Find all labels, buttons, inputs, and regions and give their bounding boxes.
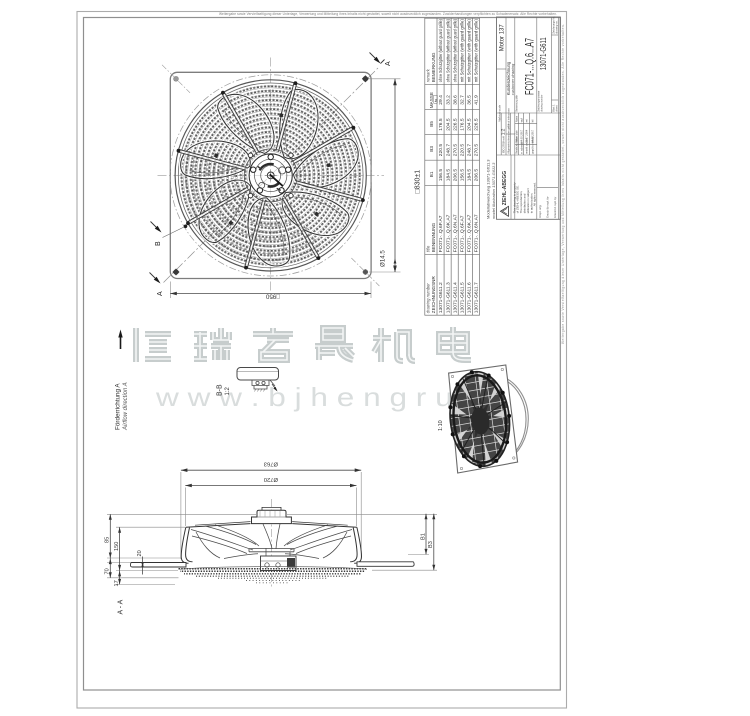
svg-text:B3: B3: [428, 541, 434, 548]
svg-text:226.5: 226.5: [474, 118, 480, 131]
svg-text:A: A: [385, 61, 392, 66]
svg-text:17: 17: [114, 580, 120, 586]
svg-text:ZIEHL-ABEGG: ZIEHL-ABEGG: [502, 171, 508, 206]
svg-text:270.5: 270.5: [474, 144, 480, 157]
svg-text:ZEICHNUNGSNR: ZEICHNUNGSNR: [431, 276, 436, 314]
svg-text:Benennung title: Benennung title: [516, 95, 519, 112]
svg-text:wuf: wuf: [519, 118, 523, 122]
svg-text:B1: B1: [429, 171, 434, 177]
svg-text:ohne Schutzgitter (without gua: ohne Schutzgitter (without guard grille): [452, 19, 458, 82]
svg-text:Allgemeintoleranzen general to: Allgemeintoleranzen general tolerances: [507, 108, 511, 154]
svg-text:20: 20: [137, 550, 143, 556]
svg-text:13071-G611.6: 13071-G611.6: [467, 282, 473, 313]
svg-text:title: title: [425, 245, 430, 252]
svg-text:Ersatz für repl. for: Ersatz für repl. for: [546, 196, 550, 217]
svg-text:33.2: 33.2: [445, 95, 451, 105]
svg-text:29.4: 29.4: [438, 95, 444, 105]
svg-text:A: A: [157, 291, 164, 296]
svg-text:38.6: 38.6: [452, 95, 458, 105]
svg-text:13071-G611.2: 13071-G611.2: [438, 282, 444, 313]
svg-text:13071-G611: 13071-G611: [538, 37, 548, 70]
svg-text:mit Schutzgitter (with guard g: mit Schutzgitter (with guard grille): [467, 19, 473, 82]
svg-text:13071-G611.3: 13071-G611.3: [445, 282, 451, 313]
svg-text:w w w . b j h e n g r u i .: w w w . b j h e n g r u i .: [155, 382, 486, 412]
svg-text:□830±1: □830±1: [415, 170, 422, 194]
svg-text:1:2: 1:2: [501, 128, 507, 135]
svg-text:Name: Name: [516, 115, 519, 122]
svg-text:FC071-..Q.6F.A7: FC071-..Q.6F.A7: [438, 215, 444, 252]
svg-text:B-B: B-B: [217, 384, 224, 396]
svg-text:150: 150: [114, 542, 120, 551]
svg-text:Modellabweichung 13071-G611.3: Modellabweichung 13071-G611.3: [486, 159, 491, 219]
svg-text:drawing number: drawing number: [540, 94, 543, 111]
svg-text:FC071-..Q.6K.A7: FC071-..Q.6K.A7: [445, 214, 451, 252]
svg-text:204.5: 204.5: [445, 118, 451, 131]
svg-text:Airflow direction A: Airflow direction A: [123, 382, 129, 431]
svg-text:B3: B3: [429, 146, 434, 152]
svg-text:FC071-..Q.6F.A7: FC071-..Q.6F.A7: [459, 215, 465, 252]
svg-text:sheet: sheet: [554, 105, 558, 112]
svg-text:Datum date: Datum date: [516, 130, 519, 143]
svg-text:248.7: 248.7: [467, 144, 473, 157]
svg-text:ohne Schutzgitter (without gua: ohne Schutzgitter (without guard grille): [445, 19, 451, 82]
svg-text:customer drawing: customer drawing: [510, 63, 515, 95]
svg-text:Ø14.5: Ø14.5: [380, 250, 387, 267]
svg-text:± 0.5: ± 0.5: [508, 123, 511, 129]
svg-text:206.5: 206.5: [474, 169, 480, 182]
svg-text:41.9: 41.9: [474, 95, 480, 105]
svg-text:FC071-...Q.6...A7: FC071-...Q.6...A7: [525, 38, 537, 95]
svg-text:BEMERKUNG: BEMERKUNG: [431, 52, 436, 82]
svg-text:04.05.2017: 04.05.2017: [519, 129, 523, 143]
svg-text:B: B: [155, 241, 162, 246]
svg-text:248.7: 248.7: [445, 144, 451, 157]
svg-text:drawing number: drawing number: [425, 283, 430, 314]
svg-text:176.5: 176.5: [459, 118, 465, 131]
svg-text:Ø720: Ø720: [264, 476, 278, 482]
svg-text:A - A: A - A: [118, 599, 125, 614]
svg-text:184.5: 184.5: [445, 169, 451, 182]
svg-text:13071-G611.5: 13071-G611.5: [459, 282, 465, 313]
svg-text:04.05.2017: 04.05.2017: [531, 129, 535, 143]
svg-text:13071-G611.4: 13071-G611.4: [452, 282, 458, 313]
svg-text:Weitergabe sowie Vervielfaelti: Weitergabe sowie Vervielfaeltigung diese…: [561, 24, 565, 344]
svg-text:Maßstab scale: Maßstab scale: [497, 104, 501, 121]
svg-text:B5: B5: [429, 121, 434, 127]
svg-text:206.5: 206.5: [452, 169, 458, 182]
svg-text:184.5: 184.5: [467, 169, 473, 182]
svg-text:220.5: 220.5: [459, 144, 465, 157]
svg-text:drawing no.: drawing no.: [554, 20, 558, 34]
svg-text:mit Schutzgitter (with guard g: mit Schutzgitter (with guard grille): [474, 19, 480, 82]
svg-text:B1: B1: [420, 533, 426, 540]
svg-text:mit Schutzgitter (with guard g: mit Schutzgitter (with guard grille): [459, 19, 465, 82]
svg-text:Ø763: Ø763: [264, 461, 278, 467]
svg-text:remark: remark: [425, 68, 430, 82]
svg-text:hil: hil: [531, 119, 535, 122]
svg-text:Förderrichtung A: Förderrichtung A: [115, 383, 122, 430]
svg-text:156.5: 156.5: [438, 169, 444, 182]
svg-text:Ersetzt d. repl. by: Ersetzt d. repl. by: [553, 196, 557, 218]
svg-text:226.5: 226.5: [452, 118, 458, 131]
svg-text:model illustration 13071-G611: model illustration 13071-G611.3: [491, 162, 496, 219]
svg-text:32.7: 32.7: [459, 95, 465, 105]
svg-text:70: 70: [105, 568, 111, 574]
svg-text:FC071-..Q.6N.A7: FC071-..Q.6N.A7: [474, 214, 480, 252]
svg-text:rei: rei: [525, 119, 529, 122]
svg-text:156.5: 156.5: [459, 169, 465, 182]
svg-text:1:10: 1:10: [438, 420, 444, 431]
svg-text:Motor 137: Motor 137: [500, 24, 506, 52]
svg-text:85: 85: [105, 537, 111, 543]
svg-text:36.5: 36.5: [467, 95, 473, 105]
svg-text:270.5: 270.5: [452, 144, 458, 157]
svg-text:Weitergabe sowie Vervielfaelti: Weitergabe sowie Vervielfaeltigung diese…: [219, 12, 557, 16]
svg-text:ohne Schutzgitter (without gua: ohne Schutzgitter (without guard grille): [438, 19, 444, 82]
svg-text:FC071-..Q.6N.A7: FC071-..Q.6N.A7: [452, 214, 458, 252]
svg-text:kg: kg: [434, 99, 438, 103]
svg-text:220.5: 220.5: [438, 144, 444, 157]
svg-text:204.5: 204.5: [467, 118, 473, 131]
svg-text:1:2: 1:2: [225, 386, 231, 395]
svg-text:176.5: 176.5: [438, 118, 444, 131]
svg-text:BENENNUNG: BENENNUNG: [431, 222, 436, 252]
svg-text:All rights reserved.: All rights reserved.: [533, 182, 537, 206]
svg-text:13071-G611.7: 13071-G611.7: [474, 282, 480, 313]
svg-text:FC071-..Q.6K.A7: FC071-..Q.6K.A7: [467, 214, 473, 252]
svg-text:□950: □950: [265, 293, 280, 300]
svg-text:ISO 2768-mH: ISO 2768-mH: [502, 136, 506, 153]
svg-text:21.07.2004: 21.07.2004: [525, 129, 529, 143]
svg-text:Urspr. orig.: Urspr. orig.: [538, 204, 542, 217]
